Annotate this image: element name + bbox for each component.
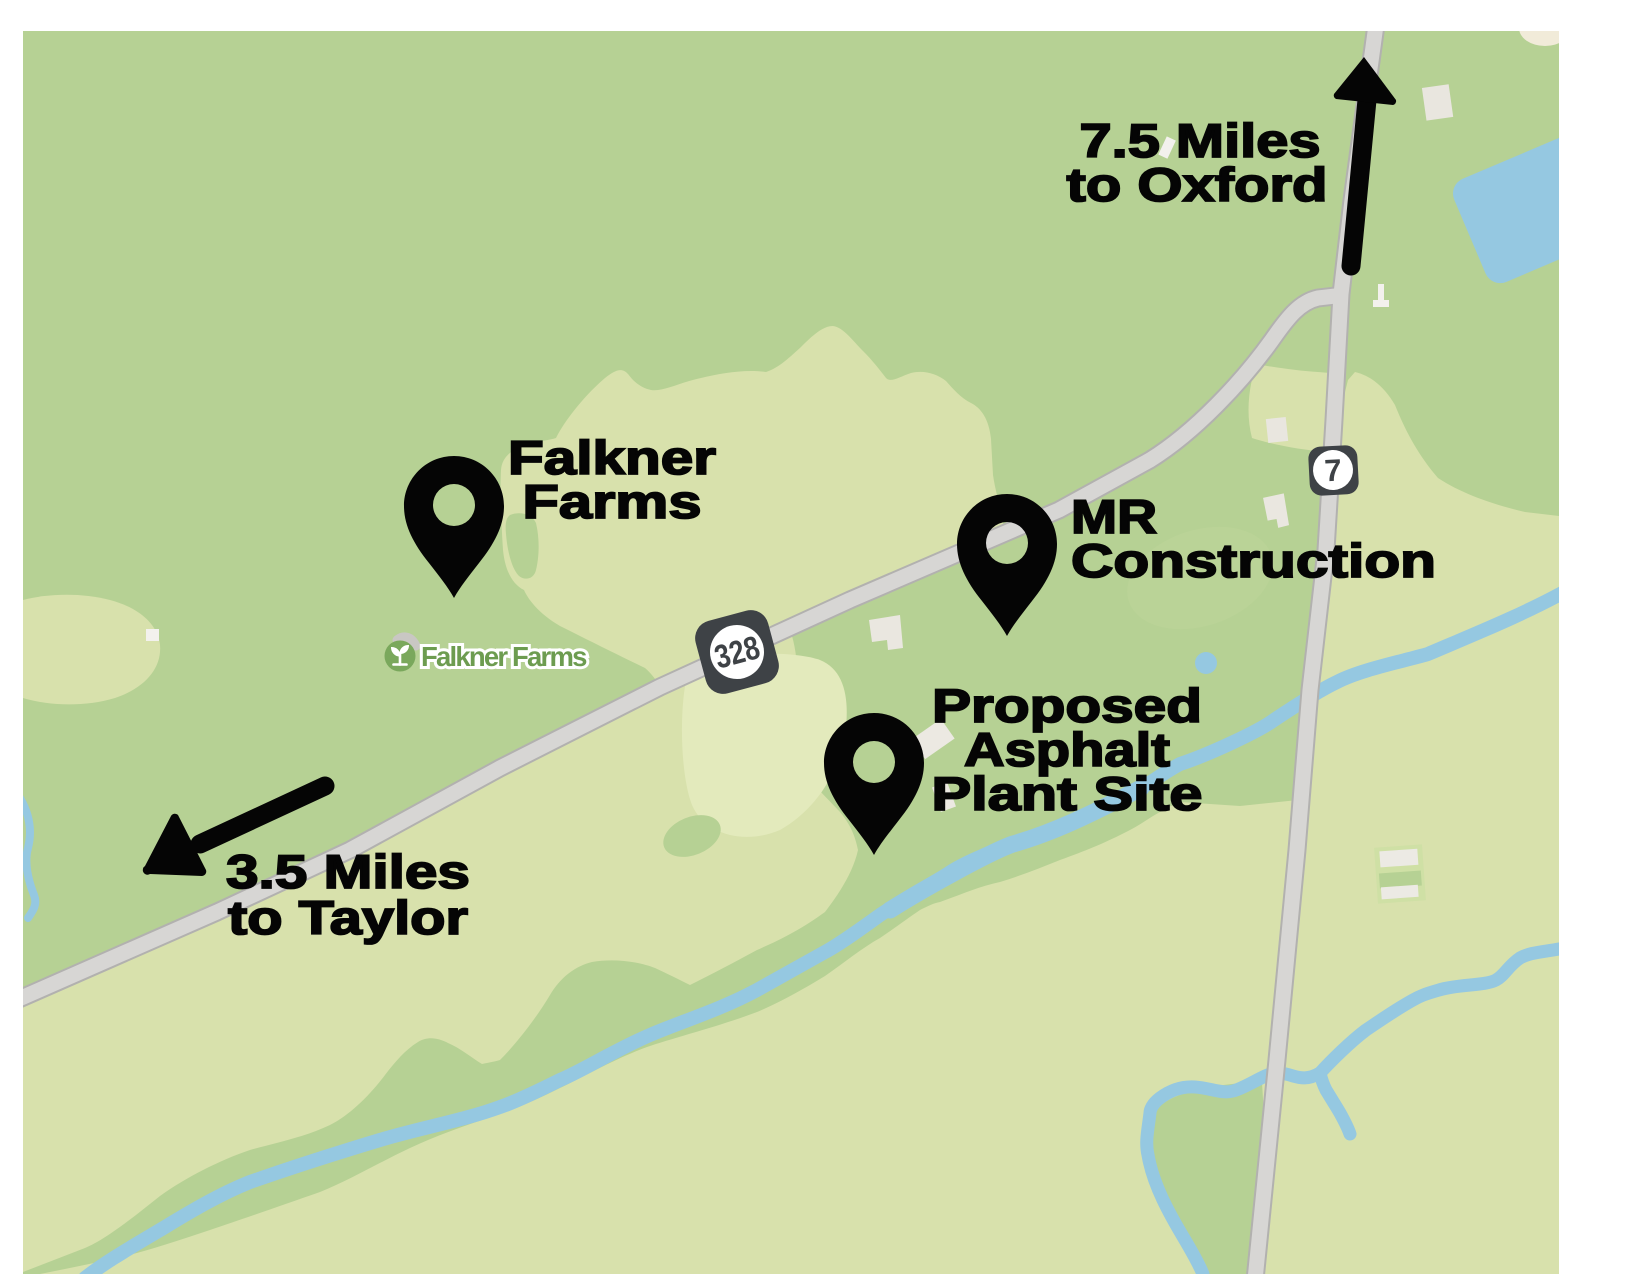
svg-text:to Oxford: to Oxford — [1067, 158, 1328, 211]
svg-text:7: 7 — [1323, 453, 1342, 489]
svg-text:Construction: Construction — [1071, 534, 1436, 587]
svg-text:to Taylor: to Taylor — [228, 891, 468, 944]
svg-text:Falkner Farms: Falkner Farms — [421, 641, 587, 672]
svg-text:Farms: Farms — [523, 475, 702, 528]
svg-text:Plant Site: Plant Site — [932, 767, 1203, 820]
